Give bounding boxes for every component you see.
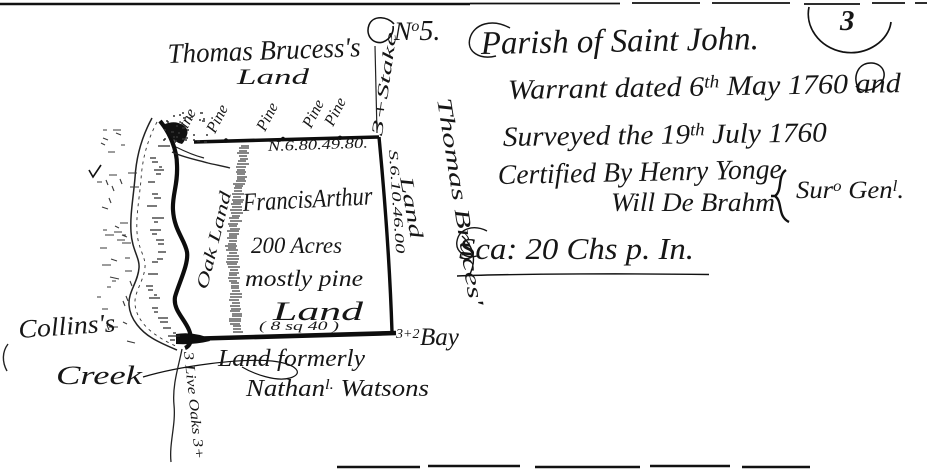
svg-text:3+2: 3+2	[395, 327, 419, 342]
svg-text:Nathanl. Watsons: Nathanl. Watsons	[245, 376, 429, 402]
svg-text:Land formerly: Land formerly	[217, 346, 365, 372]
svg-text:Sca: 20 Chs p. In.: Sca: 20 Chs p. In.	[459, 231, 694, 266]
svg-text:Certified By Henry Yonge: Certified By Henry Yonge	[497, 154, 782, 191]
svg-text:Creek: Creek	[56, 361, 143, 390]
svg-text:Surveyed the 19th July 1760: Surveyed the 19th July 1760	[503, 117, 827, 153]
svg-text:Land: Land	[235, 64, 310, 89]
svg-text:3: 3	[839, 5, 855, 37]
svg-text:Suro Genl.: Suro Genl.	[796, 177, 904, 204]
svg-text:Parish of Saint John.: Parish of Saint John.	[480, 21, 760, 62]
svg-text:( 8 sq 40 ): ( 8 sq 40 )	[259, 318, 339, 333]
svg-text:Will De Brahm: Will De Brahm	[611, 188, 775, 217]
svg-text:mostly pine: mostly pine	[245, 266, 363, 291]
svg-text:Bay: Bay	[420, 324, 460, 351]
svg-text:200 Acres: 200 Acres	[251, 233, 342, 258]
